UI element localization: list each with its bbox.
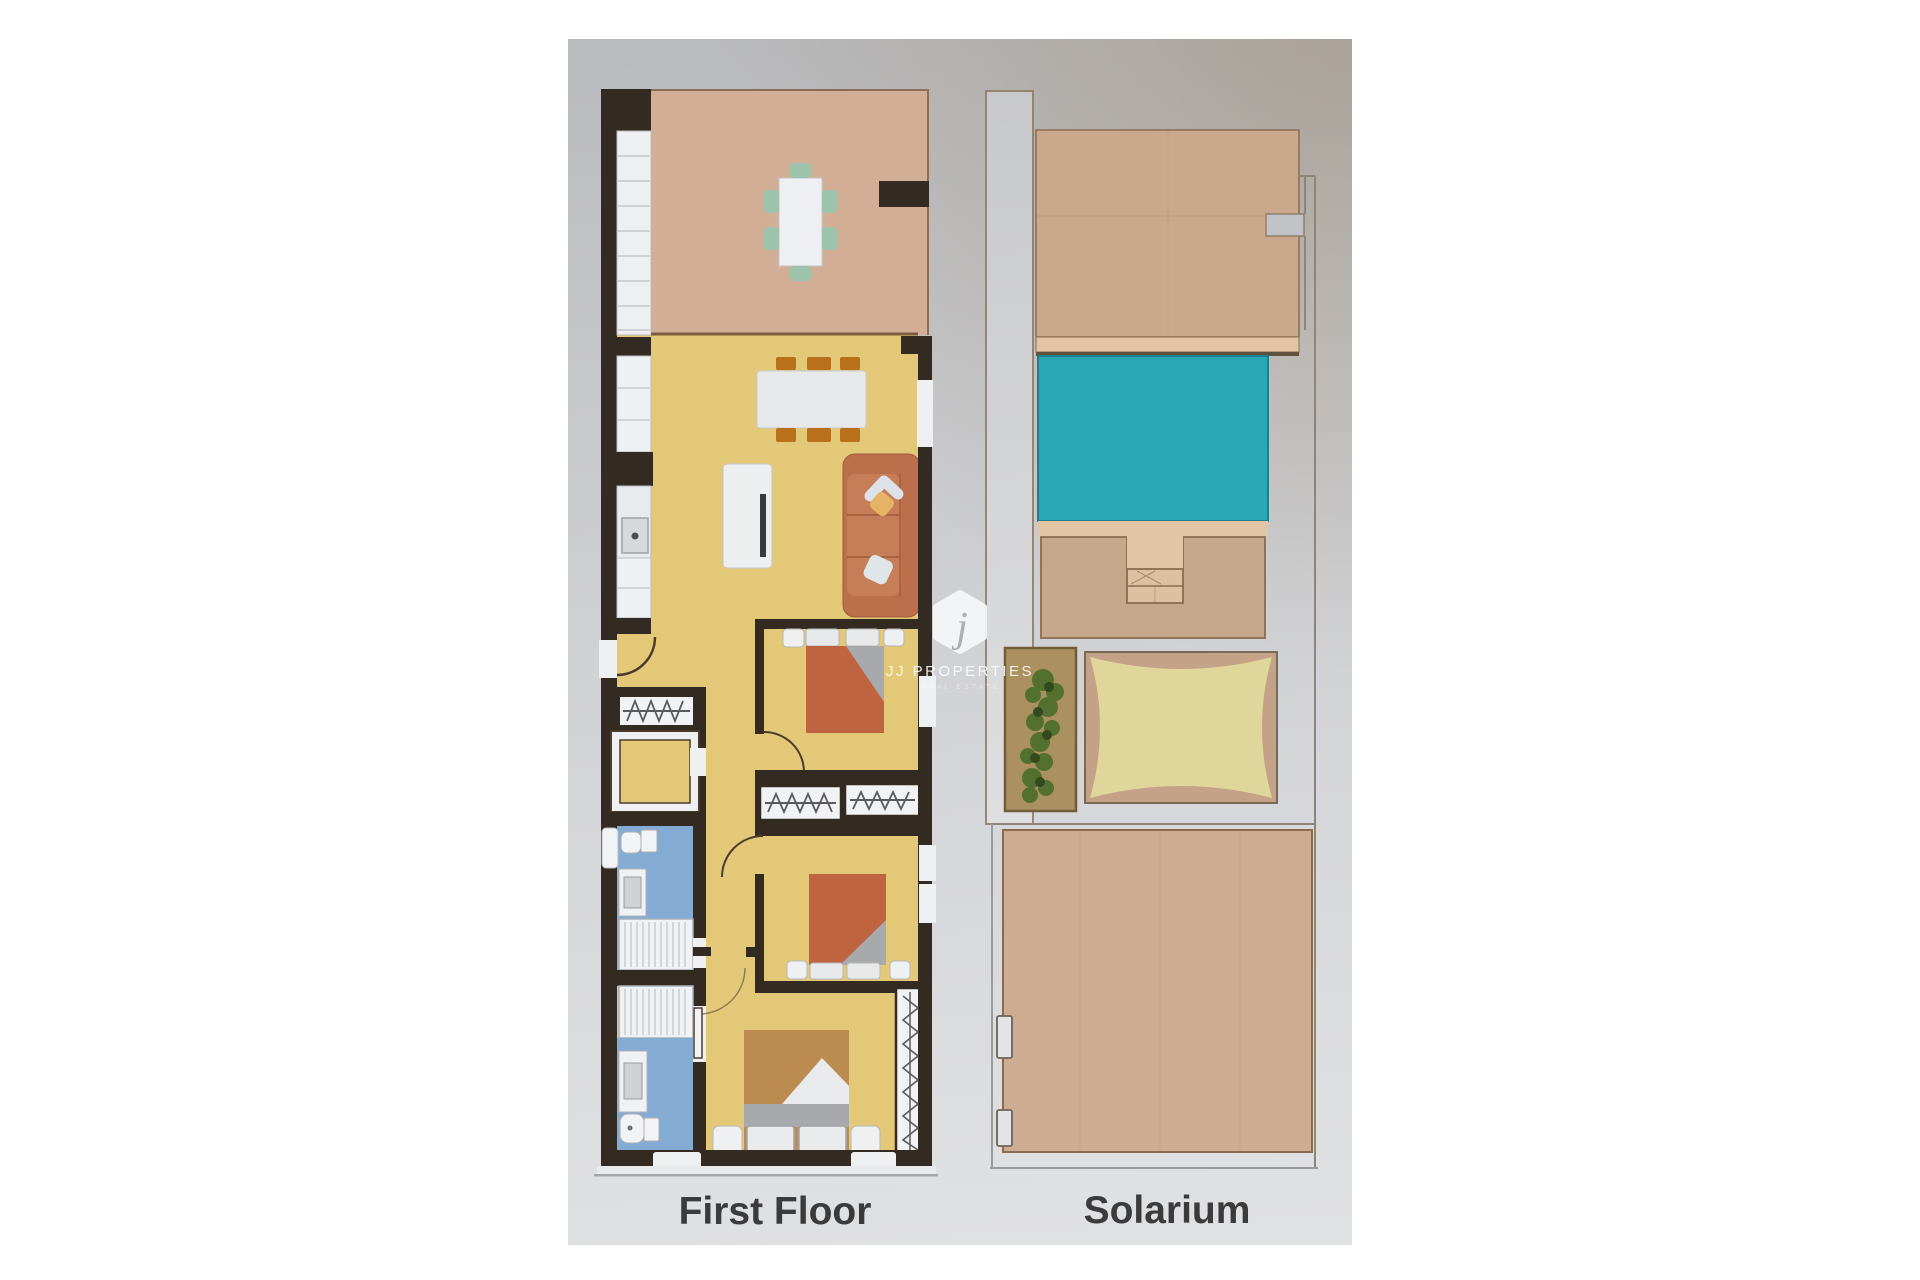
svg-text:Solarium: Solarium	[1084, 1189, 1251, 1232]
svg-text:First Floor: First Floor	[679, 1190, 872, 1233]
svg-text:REAL ESTATE: REAL ESTATE	[921, 684, 1000, 691]
svg-text:JJ PROPERTIES: JJ PROPERTIES	[886, 663, 1034, 680]
